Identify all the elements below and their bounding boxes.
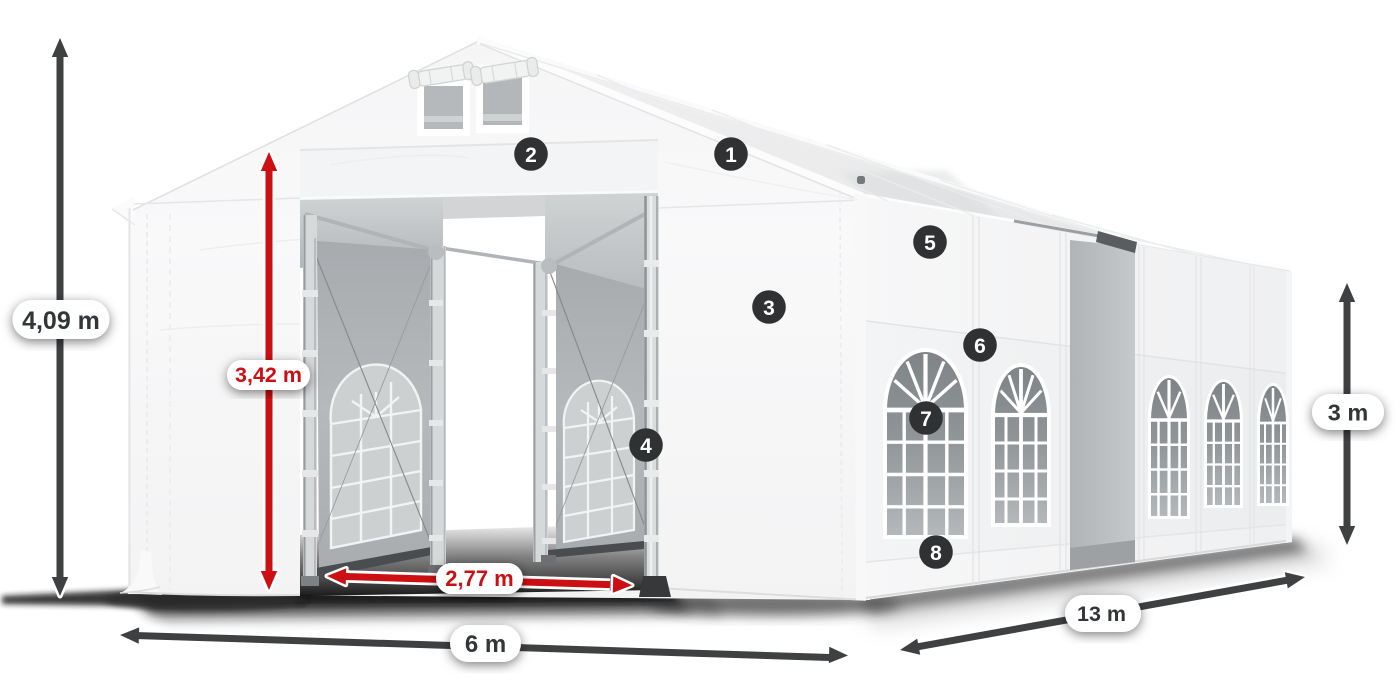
svg-text:3 m: 3 m <box>1328 400 1369 426</box>
svg-text:1: 1 <box>725 144 737 167</box>
svg-text:2: 2 <box>525 144 537 167</box>
svg-text:2,77 m: 2,77 m <box>445 566 514 591</box>
svg-text:6 m: 6 m <box>465 631 506 658</box>
svg-text:4,09 m: 4,09 m <box>22 307 100 335</box>
svg-text:5: 5 <box>924 232 936 255</box>
svg-text:3,42 m: 3,42 m <box>235 363 302 387</box>
svg-text:8: 8 <box>930 542 942 565</box>
svg-text:4: 4 <box>640 435 652 458</box>
svg-text:3: 3 <box>763 297 775 320</box>
svg-text:7: 7 <box>920 408 932 431</box>
svg-text:13 m: 13 m <box>1077 602 1126 626</box>
svg-text:6: 6 <box>974 335 986 358</box>
